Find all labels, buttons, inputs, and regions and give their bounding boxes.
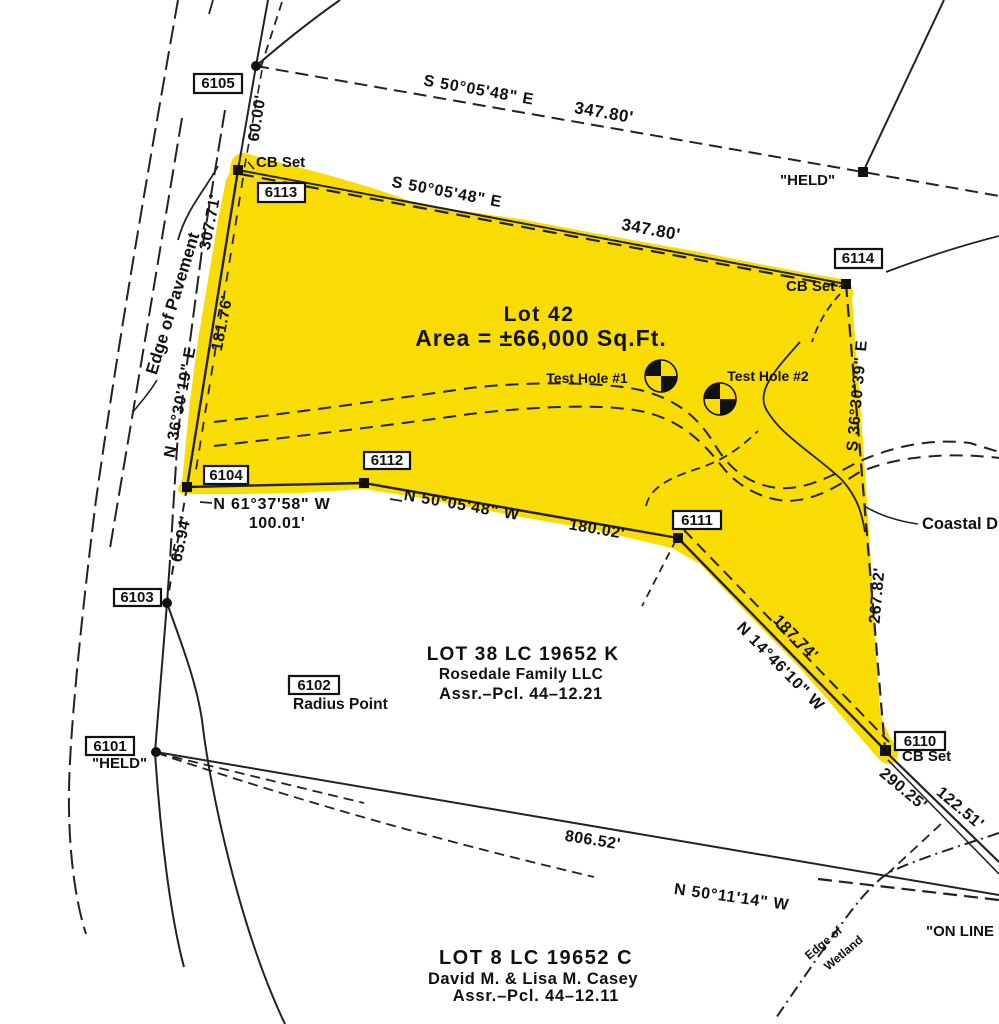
svg-text:Assr.–Pcl. 44–12.21: Assr.–Pcl. 44–12.21 [439,685,603,703]
svg-text:Radius Point: Radius Point [293,696,388,713]
svg-text:CB Set: CB Set [786,278,835,295]
svg-text:6105: 6105 [201,75,234,92]
svg-text:LOT 8 LC 19652 C: LOT 8 LC 19652 C [439,947,633,969]
svg-text:6113: 6113 [265,184,298,201]
svg-text:David M. & Lisa M. Casey: David M. & Lisa M. Casey [428,970,638,988]
svg-text:Assr.–Pcl. 44–12.11: Assr.–Pcl. 44–12.11 [453,987,620,1005]
svg-text:6112: 6112 [371,452,404,469]
svg-text:LOT 38 LC 19652 K: LOT 38 LC 19652 K [427,644,620,665]
svg-text:CB Set: CB Set [256,154,305,171]
svg-text:100.01': 100.01' [249,515,305,532]
svg-text:6103: 6103 [120,589,153,606]
svg-text:6104: 6104 [209,467,243,484]
svg-text:6111: 6111 [681,512,713,529]
svg-text:Test Hole #1: Test Hole #1 [546,370,628,386]
svg-text:Rosedale Family LLC: Rosedale Family LLC [439,666,603,683]
svg-text:CB Set: CB Set [902,748,951,765]
svg-text:Coastal Dun: Coastal Dun [922,515,999,533]
svg-text:6101: 6101 [93,738,126,755]
svg-text:6102: 6102 [297,677,330,694]
svg-text:"HELD": "HELD" [780,172,835,189]
svg-text:Area = ±66,000 Sq.Ft.: Area = ±66,000 Sq.Ft. [415,325,667,351]
svg-text:"ON LINE: "ON LINE [926,923,994,940]
svg-text:"HELD": "HELD" [92,755,147,772]
svg-text:6114: 6114 [842,250,875,267]
svg-text:Lot 42: Lot 42 [504,303,575,326]
svg-text:N 61°37'58" W: N 61°37'58" W [213,496,330,513]
svg-text:Test Hole #2: Test Hole #2 [727,368,809,384]
